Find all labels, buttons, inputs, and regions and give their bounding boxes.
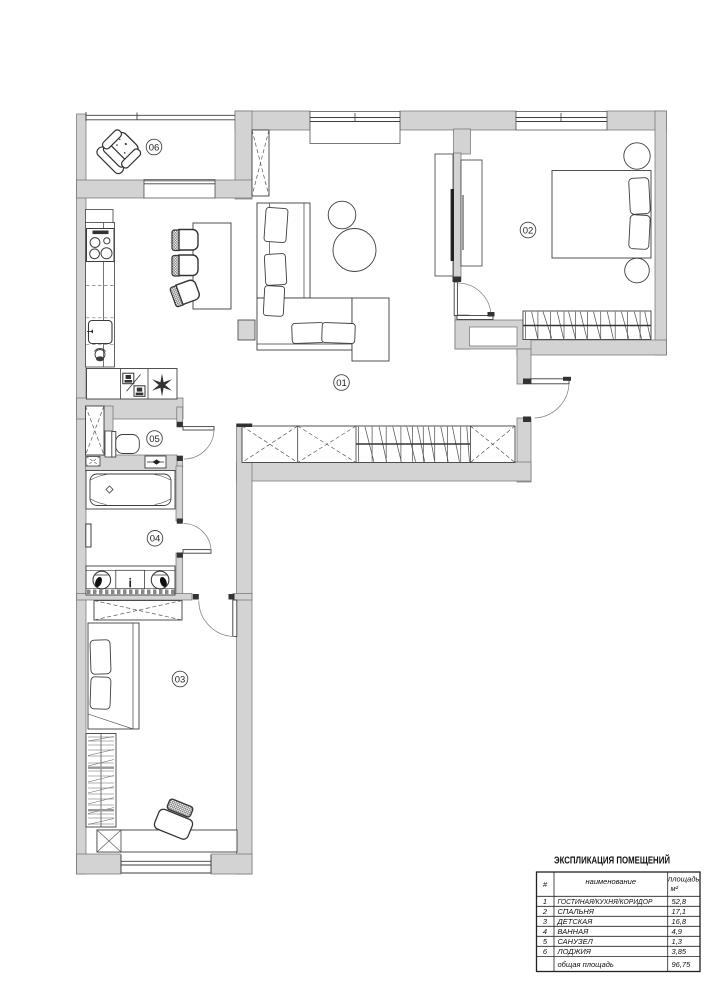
- svg-text:площадь: площадь: [668, 875, 699, 884]
- svg-text:ЛОДЖИЯ: ЛОДЖИЯ: [557, 947, 592, 956]
- svg-text:05: 05: [149, 434, 160, 445]
- svg-text:наименование: наименование: [586, 877, 636, 886]
- svg-text:ГОСТИНАЯ/КУХНЯ/КОРИДОР: ГОСТИНАЯ/КУХНЯ/КОРИДОР: [558, 897, 653, 906]
- svg-text:04: 04: [150, 534, 161, 545]
- svg-text:5: 5: [543, 937, 548, 946]
- svg-text:1,3: 1,3: [672, 937, 683, 946]
- svg-text:01: 01: [336, 378, 347, 389]
- svg-text:6: 6: [543, 947, 548, 956]
- svg-text:#: #: [543, 880, 548, 889]
- svg-text:03: 03: [175, 674, 186, 685]
- svg-text:17,1: 17,1: [672, 907, 687, 916]
- svg-text:ДЕТСКАЯ: ДЕТСКАЯ: [557, 917, 594, 926]
- svg-text:САНУЗЕЛ: САНУЗЕЛ: [558, 937, 594, 946]
- svg-text:общая площадь: общая площадь: [558, 960, 614, 969]
- svg-text:96,75: 96,75: [672, 960, 692, 969]
- svg-text:4: 4: [543, 927, 547, 936]
- svg-text:4,9: 4,9: [672, 927, 683, 936]
- svg-text:16,8: 16,8: [672, 917, 687, 926]
- svg-text:СПАЛЬНЯ: СПАЛЬНЯ: [558, 907, 595, 916]
- svg-text:02: 02: [523, 225, 534, 236]
- svg-text:3: 3: [543, 917, 548, 926]
- svg-text:1: 1: [543, 897, 547, 906]
- svg-text:52,8: 52,8: [672, 897, 687, 906]
- svg-text:06: 06: [149, 142, 160, 153]
- svg-text:м²: м²: [671, 884, 679, 893]
- svg-text:ВАННАЯ: ВАННАЯ: [558, 927, 590, 936]
- svg-text:ЭКСПЛИКАЦИЯ ПОМЕЩЕНИЙ: ЭКСПЛИКАЦИЯ ПОМЕЩЕНИЙ: [554, 854, 670, 867]
- svg-text:2: 2: [542, 907, 548, 916]
- svg-text:3,85: 3,85: [672, 947, 687, 956]
